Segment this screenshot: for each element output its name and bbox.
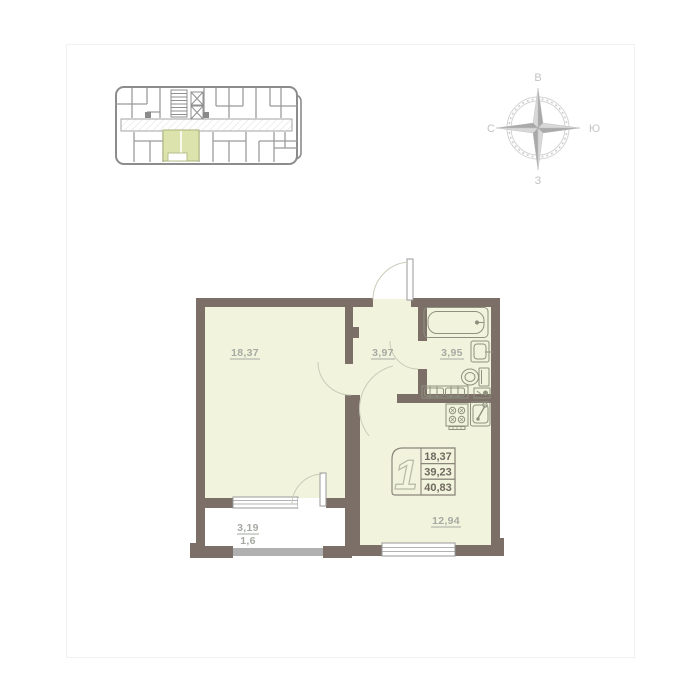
- entrance-door-leaf: [407, 259, 413, 300]
- living-area-label: 18,37: [231, 347, 259, 359]
- apartment-floor-plan: 18,37 3,97 3,95 12,94 3,19 1,6 1 18,37: [190, 259, 504, 558]
- balcony-reduced-area-label: 1,6: [240, 535, 256, 547]
- area-without-balcony-value: 39,23: [424, 467, 452, 479]
- compass-north-label: С: [487, 123, 495, 135]
- kitchen-area-label: 12,94: [432, 515, 460, 527]
- scene: В Ю З С: [0, 0, 700, 700]
- mini-plan-highlighted-unit[interactable]: [163, 130, 199, 161]
- compass-rose: В Ю З С: [487, 72, 600, 187]
- hall-area-label: 3,97: [372, 347, 394, 359]
- compass-west-label: З: [535, 175, 542, 187]
- bathroom-area-label: 3,95: [441, 347, 463, 359]
- balcony-floor: [213, 505, 345, 546]
- living-area-value: 18,37: [424, 451, 452, 463]
- shaft-block: [145, 112, 151, 118]
- mini-plan-corridor: [121, 119, 292, 131]
- total-area-value: 40,83: [424, 482, 452, 494]
- apartment-info-box: 1 18,37 39,23 40,83: [392, 448, 455, 498]
- shaft-block: [203, 112, 209, 118]
- compass-south-label: Ю: [589, 123, 600, 135]
- rooms-count-label: 1: [394, 451, 417, 498]
- balcony-door-leaf: [320, 473, 326, 506]
- building-mini-plan: [116, 87, 301, 164]
- balcony-railing: [233, 548, 323, 556]
- kitchen-window: [382, 543, 455, 556]
- compass-east-label: В: [534, 72, 541, 84]
- floorplan-page: В Ю З С: [0, 0, 700, 700]
- living-window: [233, 497, 298, 508]
- entrance-door-arc: [373, 262, 408, 300]
- balcony-area-label: 3,19: [237, 522, 259, 534]
